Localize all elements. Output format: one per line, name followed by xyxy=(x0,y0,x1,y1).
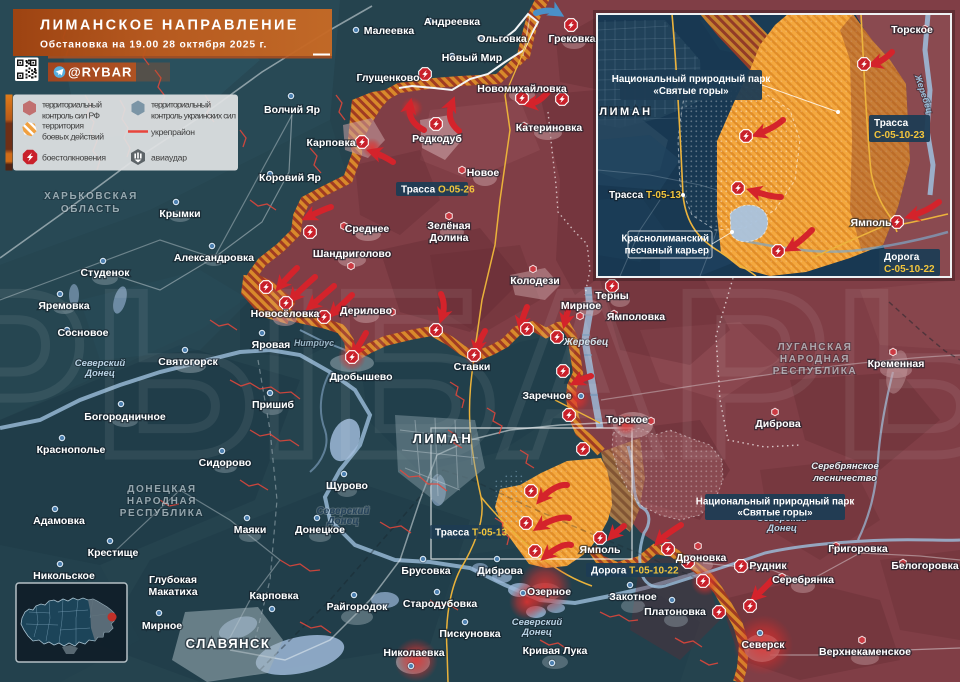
svg-text:С-05-10-22: С-05-10-22 xyxy=(884,264,935,275)
svg-text:Дерилово: Дерилово xyxy=(340,305,392,317)
svg-text:Маяки: Маяки xyxy=(234,524,267,536)
svg-text:Диброва: Диброва xyxy=(477,565,523,577)
svg-text:Глубокая: Глубокая xyxy=(149,574,197,586)
svg-text:контроль украинских сил: контроль украинских сил xyxy=(151,111,236,121)
svg-text:контроль сил РФ: контроль сил РФ xyxy=(42,111,100,121)
svg-text:Сидорово: Сидорово xyxy=(199,457,252,469)
svg-text:Стародубовка: Стародубовка xyxy=(403,598,477,610)
svg-text:Александровка: Александровка xyxy=(174,252,254,264)
svg-text:Малеевка: Малеевка xyxy=(364,25,415,37)
svg-text:Мирное: Мирное xyxy=(142,620,182,632)
svg-text:боестолкновения: боестолкновения xyxy=(42,153,106,163)
svg-text:Григоровка: Григоровка xyxy=(828,543,888,555)
svg-text:Новомихайловка: Новомихайловка xyxy=(477,83,567,95)
svg-text:НАРОДНАЯ: НАРОДНАЯ xyxy=(780,354,850,365)
svg-text:Диброва: Диброва xyxy=(755,418,801,430)
svg-text:Ольговка: Ольговка xyxy=(477,33,527,45)
svg-text:Дорога Т-05-10-22: Дорога Т-05-10-22 xyxy=(591,566,679,577)
svg-text:Брусовка: Брусовка xyxy=(401,565,450,577)
svg-text:Трасса: Трасса xyxy=(874,118,909,129)
svg-text:Николаевка: Николаевка xyxy=(383,647,444,659)
svg-text:Донец: Донец xyxy=(326,516,358,527)
svg-text:Редкодуб: Редкодуб xyxy=(412,133,462,145)
svg-text:РЕСПУБЛИКА: РЕСПУБЛИКА xyxy=(773,366,857,377)
svg-text:Национальный природный парк: Национальный природный парк xyxy=(696,497,855,508)
svg-text:Щурово: Щурово xyxy=(326,480,368,492)
svg-text:С-05-10-23: С-05-10-23 xyxy=(874,130,925,141)
svg-text:Адамовка: Адамовка xyxy=(33,515,85,527)
svg-text:Новый Мир: Новый Мир xyxy=(442,52,502,64)
svg-text:Краснолиманский: Краснолиманский xyxy=(621,234,709,245)
svg-text:Трасса Т-05-13: Трасса Т-05-13 xyxy=(435,528,507,539)
svg-text:песчаный карьер: песчаный карьер xyxy=(625,246,709,257)
svg-text:«Святые горы»: «Святые горы» xyxy=(653,86,729,97)
svg-text:@RYBAR: @RYBAR xyxy=(68,65,132,80)
svg-text:Карповка: Карповка xyxy=(249,590,298,602)
svg-text:Долина: Долина xyxy=(429,232,468,244)
svg-text:ЛИМАНСКОЕ НАПРАВЛЕНИЕ: ЛИМАНСКОЕ НАПРАВЛЕНИЕ xyxy=(40,18,299,34)
svg-text:Ямполь: Ямполь xyxy=(580,544,621,556)
svg-text:Жеребец: Жеребец xyxy=(563,336,609,348)
svg-text:Рудник: Рудник xyxy=(749,560,787,572)
svg-text:Краснополье: Краснополье xyxy=(37,444,106,456)
svg-text:Карповка: Карповка xyxy=(306,137,355,149)
svg-text:ЛИМАН: ЛИМАН xyxy=(599,106,652,118)
svg-text:Обстановка на 19.00 28 октября: Обстановка на 19.00 28 октября 2025 г. xyxy=(40,39,267,51)
svg-text:Зелёная: Зелёная xyxy=(427,220,470,232)
svg-text:Дробышево: Дробышево xyxy=(329,371,392,383)
svg-text:Студенок: Студенок xyxy=(80,267,130,279)
svg-text:«Святые горы»: «Святые горы» xyxy=(737,508,813,519)
svg-text:ЛУГАНСКАЯ: ЛУГАНСКАЯ xyxy=(778,342,853,353)
svg-text:Глущенково: Глущенково xyxy=(356,72,419,84)
svg-text:Донец: Донец xyxy=(84,368,115,379)
svg-text:Крымки: Крымки xyxy=(159,208,200,220)
svg-text:боевых действий: боевых действий xyxy=(42,132,104,142)
svg-text:Среднее: Среднее xyxy=(345,223,390,235)
svg-text:Новосёловка: Новосёловка xyxy=(251,308,320,320)
svg-text:Новое: Новое xyxy=(467,167,500,179)
svg-text:ХАРЬКОВСКАЯ: ХАРЬКОВСКАЯ xyxy=(44,191,138,202)
svg-text:Нитриус: Нитриус xyxy=(294,338,334,348)
svg-text:Ямполовка: Ямполовка xyxy=(607,311,665,323)
svg-text:территориальный: территориальный xyxy=(151,100,211,110)
svg-text:Шандриголово: Шандриголово xyxy=(313,248,391,260)
svg-text:Ямполь: Ямполь xyxy=(851,217,892,229)
svg-text:Трасса Т-05-13: Трасса Т-05-13 xyxy=(609,190,681,201)
svg-text:ДОНЕЦКАЯ: ДОНЕЦКАЯ xyxy=(127,484,196,495)
svg-text:Закотное: Закотное xyxy=(609,591,657,603)
svg-text:НАРОДНАЯ: НАРОДНАЯ xyxy=(127,496,197,507)
svg-text:Святогорск: Святогорск xyxy=(158,356,218,368)
svg-text:Грековка: Грековка xyxy=(549,33,596,45)
svg-text:Ставки: Ставки xyxy=(454,361,491,373)
svg-text:РЕСПУБЛИКА: РЕСПУБЛИКА xyxy=(120,508,204,519)
svg-text:Трасса О-05-26: Трасса О-05-26 xyxy=(401,185,475,196)
svg-text:ЛИМАН: ЛИМАН xyxy=(413,431,474,446)
svg-text:Колодези: Колодези xyxy=(510,275,560,287)
svg-text:авиаудар: авиаудар xyxy=(151,153,187,163)
svg-text:территориальный: территориальный xyxy=(42,100,102,110)
svg-text:Райгородок: Райгородок xyxy=(327,601,389,613)
svg-text:ОБЛАСТЬ: ОБЛАСТЬ xyxy=(61,204,121,215)
svg-text:Северск: Северск xyxy=(741,639,785,651)
svg-text:Андреевка: Андреевка xyxy=(424,16,480,28)
svg-text:Яровая: Яровая xyxy=(252,339,291,351)
svg-text:СЛАВЯНСК: СЛАВЯНСК xyxy=(186,636,271,651)
svg-text:Национальный природный парк: Национальный природный парк xyxy=(612,74,771,85)
svg-text:Волчий Яр: Волчий Яр xyxy=(264,104,320,116)
svg-text:Никольское: Никольское xyxy=(33,570,95,582)
svg-text:Донец: Донец xyxy=(521,627,552,638)
svg-text:Торское: Торское xyxy=(606,414,648,426)
svg-text:Коровий Яр: Коровий Яр xyxy=(259,172,321,184)
svg-text:Торское: Торское xyxy=(891,24,933,36)
svg-text:Белогоровка: Белогоровка xyxy=(891,560,959,572)
svg-text:Дорога: Дорога xyxy=(884,252,920,263)
svg-text:Серебрянское: Серебрянское xyxy=(811,461,879,472)
svg-text:Яремовка: Яремовка xyxy=(38,300,89,312)
svg-text:Верхнекаменское: Верхнекаменское xyxy=(819,646,911,658)
svg-text:Заречное: Заречное xyxy=(522,390,571,402)
svg-text:Платоновка: Платоновка xyxy=(644,606,706,618)
svg-text:территория: территория xyxy=(42,121,84,131)
svg-text:Серебрянка: Серебрянка xyxy=(772,574,834,586)
svg-text:Богородничное: Богородничное xyxy=(84,411,166,423)
svg-text:укрепрайон: укрепрайон xyxy=(151,127,195,137)
svg-text:Сосновое: Сосновое xyxy=(57,327,108,339)
svg-text:Пискуновка: Пискуновка xyxy=(439,628,500,640)
svg-text:Озерное: Озерное xyxy=(527,586,571,598)
svg-text:Кременная: Кременная xyxy=(868,358,925,370)
svg-text:Макатиха: Макатиха xyxy=(148,586,197,598)
svg-text:Кривая Лука: Кривая Лука xyxy=(523,645,588,657)
svg-text:Катериновка: Катериновка xyxy=(516,122,583,134)
svg-text:Пришиб: Пришиб xyxy=(252,399,295,411)
svg-text:лесничество: лесничество xyxy=(812,473,877,484)
svg-text:Мирное: Мирное xyxy=(561,300,601,312)
svg-text:Крестище: Крестище xyxy=(88,547,139,559)
svg-text:Дроновка: Дроновка xyxy=(676,552,727,564)
svg-text:Донец: Донец xyxy=(766,523,797,534)
